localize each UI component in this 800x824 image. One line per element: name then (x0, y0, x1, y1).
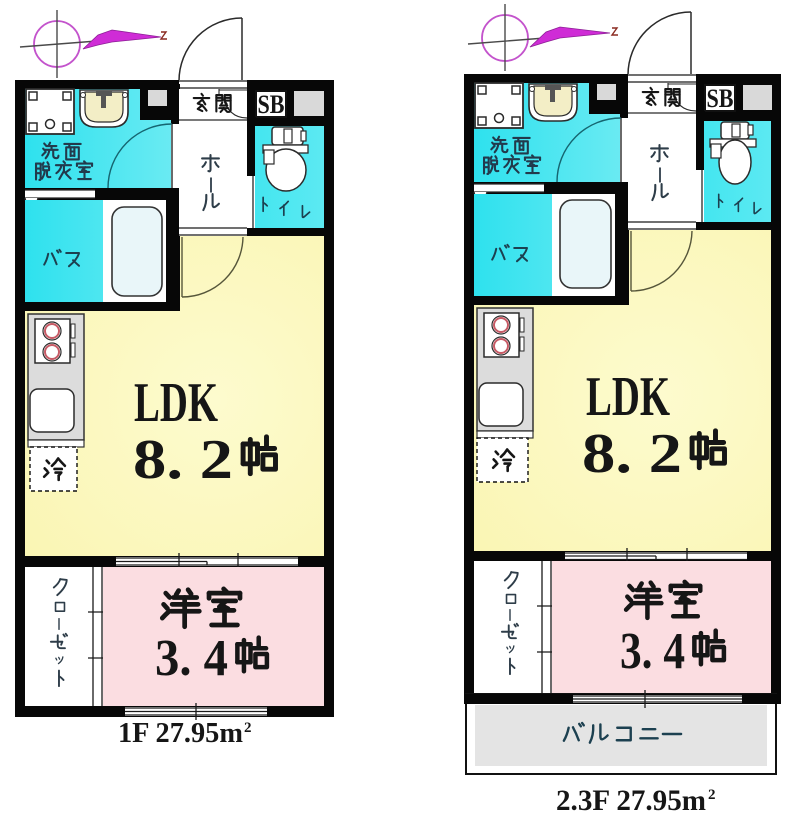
svg-text:SB: SB (258, 90, 285, 119)
svg-text:8. 2: 8. 2 (582, 423, 682, 485)
svg-text:LDK: LDK (134, 372, 218, 434)
svg-text:LDK: LDK (586, 366, 670, 428)
svg-text:2: 2 (244, 720, 252, 736)
svg-text:3. 4: 3. 4 (155, 630, 228, 687)
svg-text:3. 4: 3. 4 (620, 623, 685, 680)
svg-text:8. 2: 8. 2 (133, 429, 233, 491)
svg-text:2: 2 (708, 787, 716, 803)
svg-text:1F 27.95m: 1F 27.95m (118, 717, 243, 749)
svg-text:2.3F 27.95m: 2.3F 27.95m (556, 784, 706, 817)
svg-text:SB: SB (707, 84, 734, 113)
